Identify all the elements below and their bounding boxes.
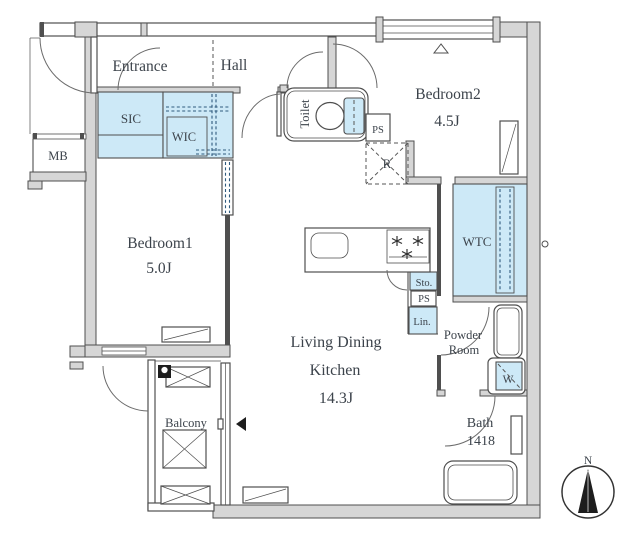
mb-bottom-wall [30,172,86,181]
wtc-top-wall-left [406,177,441,184]
bedroom1-right-wall [225,215,230,345]
below-mb-stub [28,181,42,189]
powder-room-label-1: Powder [444,328,483,342]
wtc-top-wall-right [455,177,527,184]
ps-upper-label: PS [372,125,384,136]
top-wall-window-left [40,23,75,36]
ldk-label-1: Living Dining [290,334,381,351]
balcony-label: Balcony [165,416,207,430]
ldk-door-leaf [277,92,281,136]
wic-room [163,92,233,158]
ldk-door-arc [242,94,280,138]
window-triangle-marker [434,44,448,53]
mb-top-wall [33,134,86,139]
storage-door-arc [387,270,407,290]
wic-label: WIC [172,130,196,144]
ps-lower-label: PS [418,294,430,305]
sliding-door-hatches [222,160,233,215]
right-wall [527,22,540,518]
porch-stub-2 [70,362,83,369]
top-wall-mullion [141,23,147,36]
bedroom1-size-label: 5.0J [146,260,171,277]
hall-label: Hall [221,57,248,74]
entrance-door-leaf [91,37,97,93]
ldk-label-2: Kitchen [310,362,361,379]
porch-door-arc [103,366,148,411]
stove [387,230,429,263]
toilet-label: Toilet [298,99,312,129]
wall-circle-marker [542,241,548,247]
bath-top-wall-left [437,390,445,396]
storage-label: Sto. [416,278,433,289]
porch-stub-1 [70,346,86,357]
compass-north-label: N [584,455,593,467]
mb-nook [28,38,86,189]
toilet-door-arc [287,52,323,88]
balcony-area [148,360,246,511]
washer-label: W [503,374,514,386]
floor-plan: Entrance Hall SIC WIC MB Toilet PS R Bed… [0,0,640,545]
hall-bedroom2-stub [328,37,336,88]
bath-size-label: 1418 [467,434,495,449]
entrance-label: Entrance [112,58,167,75]
glass-door-handle [218,419,223,429]
sic-label: SIC [121,111,141,126]
top-left-wall-block [75,22,97,37]
toilet-room [284,88,368,141]
kitchen-counter [305,228,430,272]
bedroom1-label: Bedroom1 [127,235,192,252]
compass [562,466,614,518]
ldk-size-label: 14.3J [319,390,353,407]
faucet-circle [161,367,168,374]
bath-shelf [511,416,522,454]
balcony-x-boxes [161,367,210,504]
top-wall-endcap [40,22,44,37]
linen-label: Lin. [413,317,430,328]
top-wall-window-band [97,23,378,36]
bedroom2-window [376,17,500,53]
wtc-label: WTC [463,234,492,249]
bedroom2-size-label: 4.5J [434,113,459,130]
floor-plan-drawing: Entrance Hall SIC WIC MB Toilet PS R Bed… [0,0,640,545]
bedroom2-door-arc [333,44,377,88]
bottom-wall [213,505,540,518]
refrigerator-label: R [383,156,392,171]
balcony-rail-left [148,360,155,510]
powder-left-wall [437,355,441,390]
bedroom2-label: Bedroom2 [415,86,480,103]
powder-room-label-2: Room [449,343,480,357]
toilet-bowl [316,103,344,130]
wtc-left-wall [437,184,441,296]
wtc-bottom-wall [453,296,527,302]
door-direction-marker [236,417,246,431]
kitchen-sink [311,233,348,258]
mb-label: MB [48,149,67,163]
bath-label: Bath [467,416,493,431]
